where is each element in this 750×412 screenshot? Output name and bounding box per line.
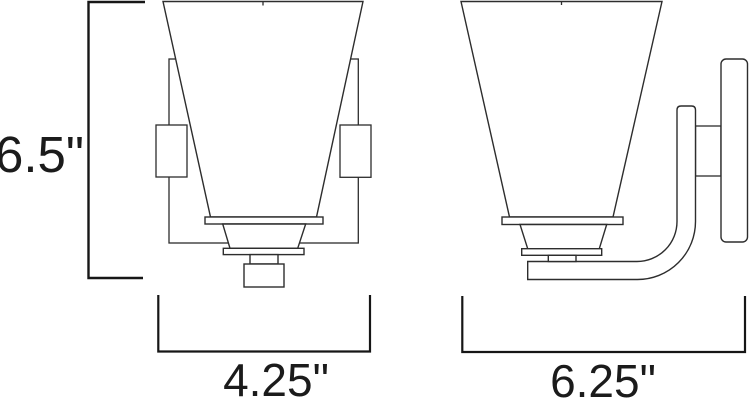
line-drawing: 6.5" 4.25" 6.25"	[0, 0, 750, 412]
side-shade-rim	[502, 217, 623, 225]
side-width-dimension-line	[462, 296, 745, 352]
front-stem	[250, 255, 278, 264]
front-finial-knob	[244, 264, 284, 287]
side-wall-plate	[721, 59, 748, 242]
side-view	[461, 2, 748, 280]
side-shade	[461, 2, 662, 218]
height-dimension-line	[89, 2, 146, 278]
front-view	[156, 2, 371, 288]
front-holder-ring	[223, 248, 304, 254]
front-width-dimension-label: 4.25"	[223, 354, 329, 406]
side-width-dimension-label: 6.25"	[550, 355, 656, 407]
side-stem	[548, 255, 576, 261]
front-socket-holder	[223, 224, 306, 248]
height-dimension-label: 6.5"	[0, 126, 84, 183]
front-left-arm-bracket	[156, 125, 187, 177]
sconce-dimension-diagram: 6.5" 4.25" 6.25"	[0, 0, 750, 412]
front-right-arm-bracket	[340, 125, 371, 177]
side-holder-ring	[522, 249, 602, 256]
front-shade-rim	[205, 217, 323, 224]
side-socket-holder	[520, 225, 607, 249]
front-width-dimension-line	[158, 295, 370, 352]
side-mount-block	[696, 126, 722, 176]
